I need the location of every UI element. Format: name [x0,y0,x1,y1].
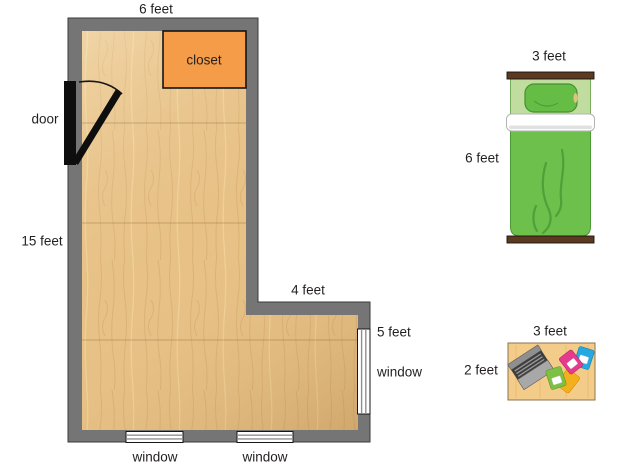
window-bottom-right-label: window [242,450,287,464]
door-label: door [31,112,58,126]
floor-shading [82,31,358,430]
bed [507,72,595,243]
bed-pillow [525,84,577,112]
window-right-label: window [377,365,422,379]
bed-sheet-shadow [509,126,592,130]
closet-label: closet [186,53,221,67]
desk-depth-label: 2 feet [464,363,498,377]
bed-width-label: 3 feet [532,49,566,63]
bed-headboard [507,72,594,79]
window-bottom-left [126,432,183,443]
label-left-height: 15 feet [21,234,62,248]
window-bottom-right [237,432,293,443]
window-bottom-left-label: window [132,450,177,464]
label-top-width: 6 feet [139,2,173,16]
bed-footboard [507,236,594,243]
desk-width-label: 3 feet [533,324,567,338]
label-notch-width: 4 feet [291,283,325,297]
bed-length-label: 6 feet [465,151,499,165]
desk [508,343,595,400]
label-right-wall: 5 feet [377,325,411,339]
door-opening [64,81,76,165]
floor-plan-diagram: 6 feet closet door 15 feet 4 feet 5 feet… [0,0,617,473]
pillow-tag [574,93,578,103]
floor-plan-graphics [0,0,617,473]
window-right [358,329,371,414]
